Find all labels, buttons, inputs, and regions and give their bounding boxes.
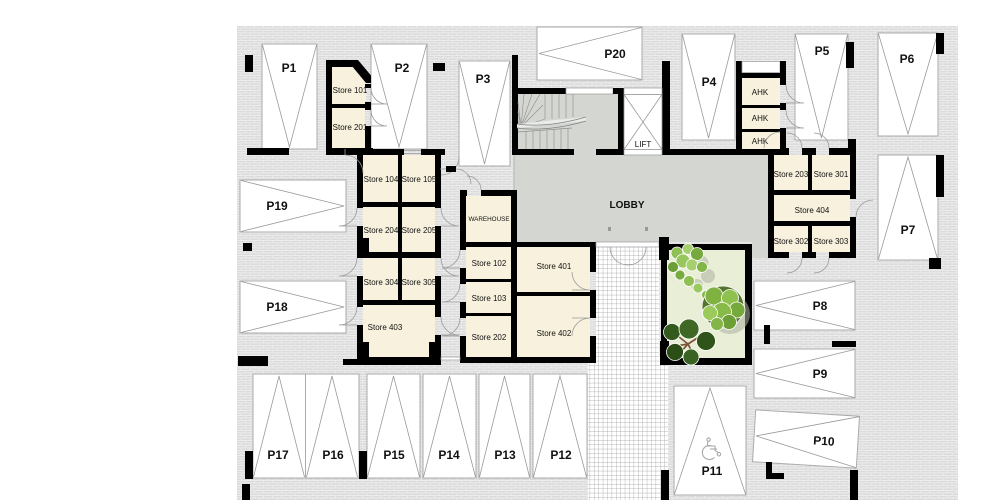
- svg-text:AHK: AHK: [752, 137, 769, 146]
- svg-text:Store 104: Store 104: [364, 175, 399, 184]
- svg-text:P20: P20: [604, 47, 626, 61]
- svg-text:P9: P9: [813, 367, 828, 381]
- svg-text:P14: P14: [438, 448, 460, 462]
- svg-text:Store 305: Store 305: [402, 278, 437, 287]
- svg-text:AHK: AHK: [752, 114, 769, 123]
- svg-text:P15: P15: [383, 448, 405, 462]
- svg-text:Store 402: Store 402: [537, 329, 572, 338]
- svg-text:P17: P17: [267, 448, 289, 462]
- svg-text:Store 101: Store 101: [333, 86, 368, 95]
- svg-text:LOBBY: LOBBY: [610, 200, 645, 211]
- svg-text:Store 303: Store 303: [814, 237, 849, 246]
- svg-text:P18: P18: [266, 300, 288, 314]
- svg-text:P2: P2: [395, 61, 410, 75]
- svg-text:P12: P12: [550, 448, 572, 462]
- svg-text:P5: P5: [815, 44, 830, 58]
- svg-text:P10: P10: [813, 433, 835, 448]
- svg-text:Store 202: Store 202: [472, 333, 507, 342]
- svg-text:Store 201: Store 201: [333, 123, 368, 132]
- svg-text:WAREHOUSE: WAREHOUSE: [468, 216, 509, 223]
- svg-text:Store 404: Store 404: [795, 206, 830, 215]
- svg-text:Store 102: Store 102: [472, 259, 507, 268]
- svg-text:P4: P4: [702, 75, 717, 89]
- svg-text:Store 301: Store 301: [814, 170, 849, 179]
- svg-text:P11: P11: [702, 464, 723, 478]
- svg-text:Store 401: Store 401: [537, 262, 572, 271]
- svg-text:Store 205: Store 205: [402, 226, 437, 235]
- svg-text:P6: P6: [900, 52, 915, 66]
- svg-text:LIFT: LIFT: [635, 140, 652, 149]
- svg-text:P1: P1: [282, 61, 297, 75]
- svg-text:Store 105: Store 105: [402, 175, 437, 184]
- svg-text:P19: P19: [266, 199, 288, 213]
- svg-text:P16: P16: [322, 448, 344, 462]
- svg-text:Store 103: Store 103: [472, 294, 507, 303]
- svg-text:AHK: AHK: [752, 88, 769, 97]
- svg-text:Store 204: Store 204: [364, 226, 399, 235]
- svg-text:Store 203: Store 203: [774, 170, 809, 179]
- svg-text:Store 302: Store 302: [774, 237, 809, 246]
- svg-text:Store 403: Store 403: [368, 323, 403, 332]
- svg-text:P8: P8: [813, 299, 828, 313]
- svg-text:Store 304: Store 304: [364, 278, 399, 287]
- svg-text:P7: P7: [901, 223, 916, 237]
- svg-text:P3: P3: [476, 72, 491, 86]
- svg-text:P13: P13: [494, 448, 516, 462]
